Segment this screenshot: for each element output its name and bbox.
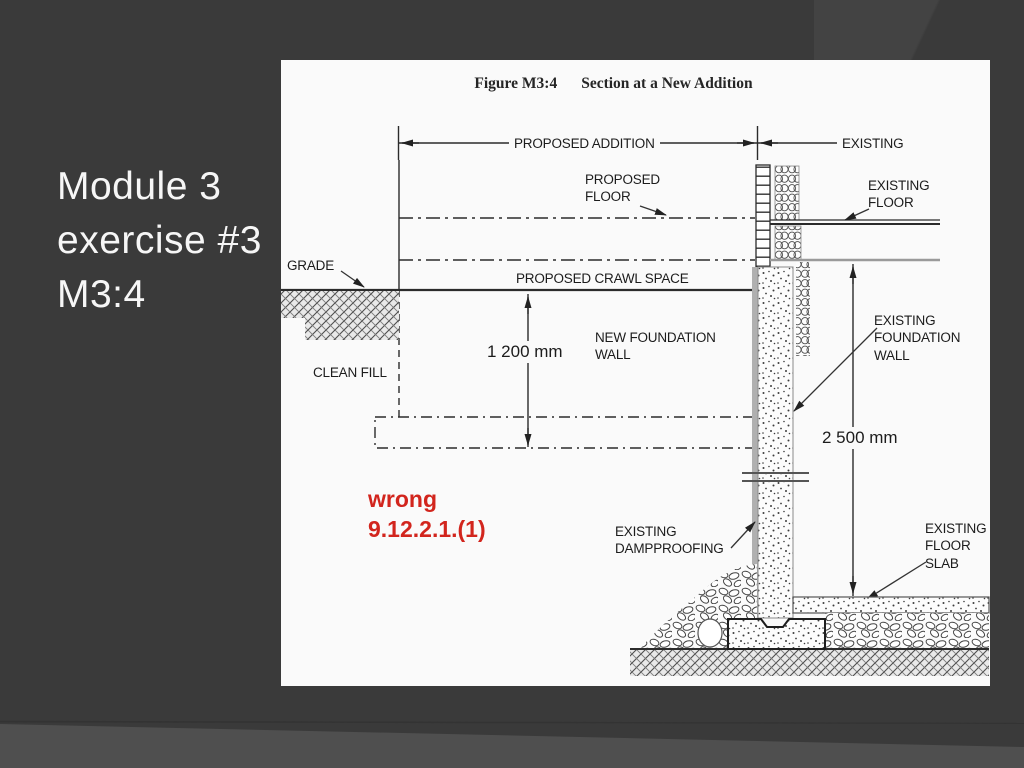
existing-footing [728, 619, 825, 649]
undisturbed-earth-hatch [630, 650, 989, 676]
background-bottom-band [0, 718, 1024, 768]
footing-and-ground [630, 564, 989, 676]
label-clean-fill: CLEAN FILL [313, 364, 387, 381]
framed-wall [756, 165, 770, 267]
label-proposed-floor: PROPOSED FLOOR [585, 171, 660, 206]
gravel-under-slab [825, 613, 989, 649]
label-existing-floor: EXISTING FLOOR [868, 177, 929, 212]
label-new-foundation-wall: NEW FOUNDATION WALL [595, 329, 716, 364]
dim-label-1200mm: 1 200 mm [484, 341, 566, 363]
background-band-edge [0, 720, 1024, 724]
figure-caption: Figure M3:4 Section at a New Addition [281, 75, 990, 93]
annotation-wrong-code-reference: wrong 9.12.2.1.(1) [368, 485, 486, 545]
slide-title: Module 3 exercise #3 M3:4 [57, 160, 262, 321]
figure-caption-title: Section at a New Addition [581, 75, 752, 93]
label-grade: GRADE [287, 257, 334, 274]
dim-label-2500mm: 2 500 mm [819, 427, 901, 449]
label-existing-floor-slab: EXISTING FLOOR SLAB [925, 520, 986, 572]
batt-insulation-mid [775, 226, 801, 260]
existing-wall-assembly [742, 165, 940, 618]
drain-pipe [698, 619, 722, 647]
dim-label-existing: EXISTING [837, 135, 908, 152]
section-drawing-linework [281, 60, 990, 686]
batt-insulation-upper [775, 166, 799, 220]
grade-earth-hatch [281, 291, 399, 340]
existing-floor-slab [793, 597, 989, 613]
label-existing-foundation-wall: EXISTING FOUNDATION WALL [874, 312, 960, 364]
dim-label-proposed-addition: PROPOSED ADDITION [509, 135, 660, 152]
label-proposed-crawl-space: PROPOSED CRAWL SPACE [516, 270, 689, 287]
figure-panel: Figure M3:4 Section at a New Addition PR… [281, 60, 990, 686]
label-existing-dampproofing: EXISTING DAMPPROOFING [615, 523, 724, 558]
figure-caption-label: Figure M3:4 [474, 75, 557, 93]
insulation-coil-column [796, 262, 810, 356]
presentation-slide: Module 3 exercise #3 M3:4 [0, 0, 1024, 768]
existing-foundation-wall [758, 267, 793, 618]
